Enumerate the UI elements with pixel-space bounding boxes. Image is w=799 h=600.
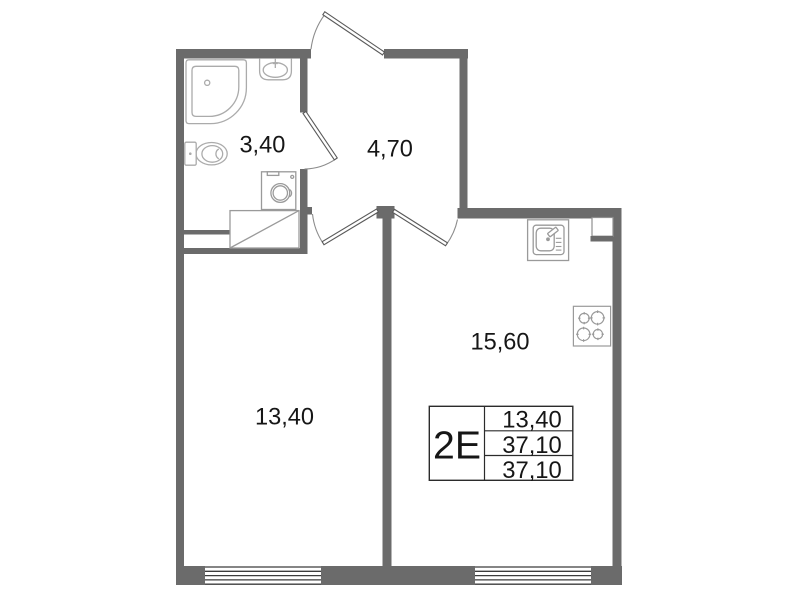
svg-text:3,40: 3,40 (239, 132, 285, 158)
svg-text:37,10: 37,10 (502, 432, 562, 459)
svg-text:13,40: 13,40 (502, 406, 562, 433)
svg-text:15,60: 15,60 (470, 329, 529, 355)
svg-text:2Е: 2Е (433, 424, 481, 467)
svg-text:37,10: 37,10 (502, 457, 562, 484)
svg-text:13,40: 13,40 (255, 405, 314, 431)
svg-text:4,70: 4,70 (367, 136, 413, 162)
